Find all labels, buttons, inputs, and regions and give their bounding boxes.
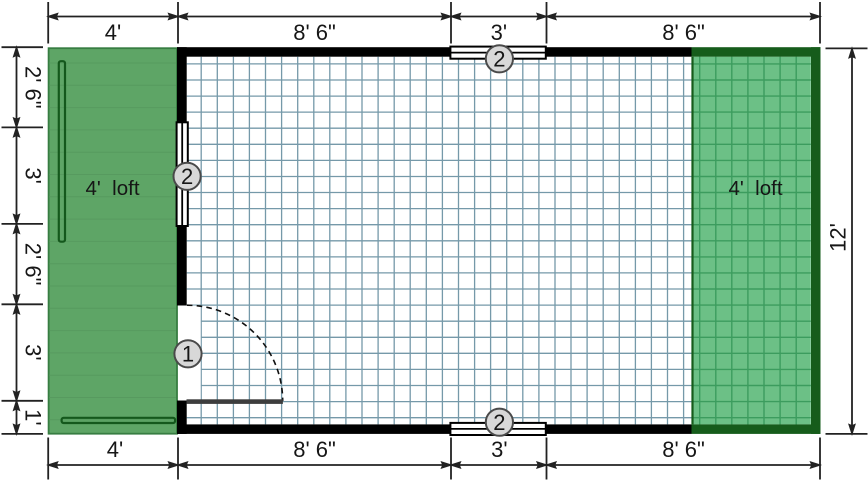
svg-text:2' 6": 2' 6" <box>21 66 46 109</box>
svg-text:8' 6": 8' 6" <box>662 437 705 462</box>
svg-text:4': 4' <box>105 20 121 45</box>
svg-text:1': 1' <box>21 409 46 425</box>
svg-text:12': 12' <box>826 223 851 252</box>
svg-text:3': 3' <box>21 167 46 183</box>
svg-text:4' loft: 4' loft <box>85 177 139 200</box>
svg-text:4' loft: 4' loft <box>728 177 782 200</box>
svg-text:4': 4' <box>107 437 123 462</box>
svg-text:3': 3' <box>491 437 507 462</box>
svg-text:8' 6": 8' 6" <box>293 20 336 45</box>
svg-text:2: 2 <box>181 164 193 189</box>
svg-text:1: 1 <box>182 342 194 367</box>
svg-text:8' 6": 8' 6" <box>662 20 705 45</box>
svg-text:8' 6": 8' 6" <box>293 437 336 462</box>
svg-text:3': 3' <box>491 20 507 45</box>
svg-text:2: 2 <box>493 410 505 435</box>
svg-text:3': 3' <box>21 344 46 360</box>
svg-text:2: 2 <box>493 47 505 72</box>
svg-text:2' 6": 2' 6" <box>21 243 46 286</box>
